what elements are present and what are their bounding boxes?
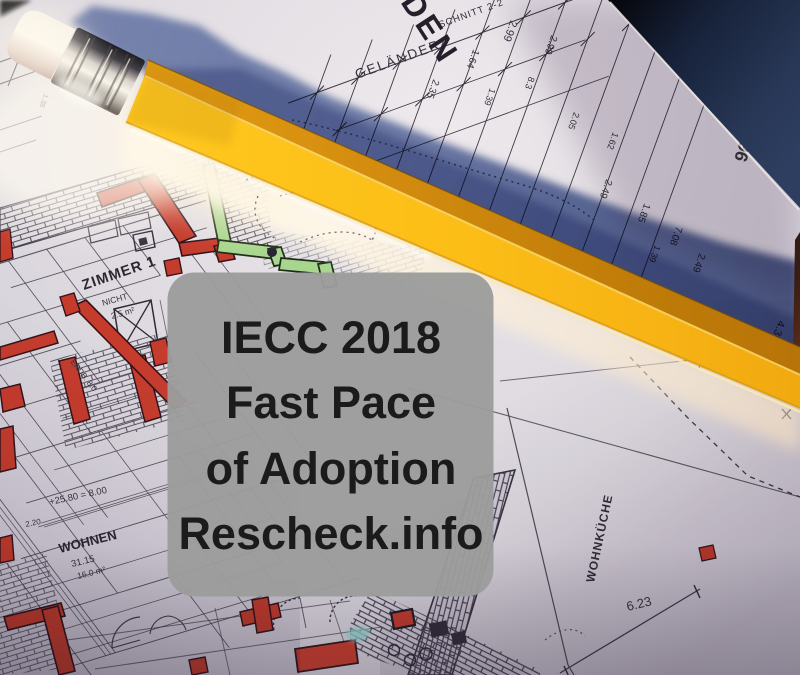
svg-text:Fast Pace: Fast Pace <box>226 377 436 428</box>
svg-text:IECC 2018: IECC 2018 <box>221 312 441 363</box>
svg-text:Rescheck.info: Rescheck.info <box>178 508 483 559</box>
svg-text:of Adoption: of Adoption <box>206 443 457 494</box>
